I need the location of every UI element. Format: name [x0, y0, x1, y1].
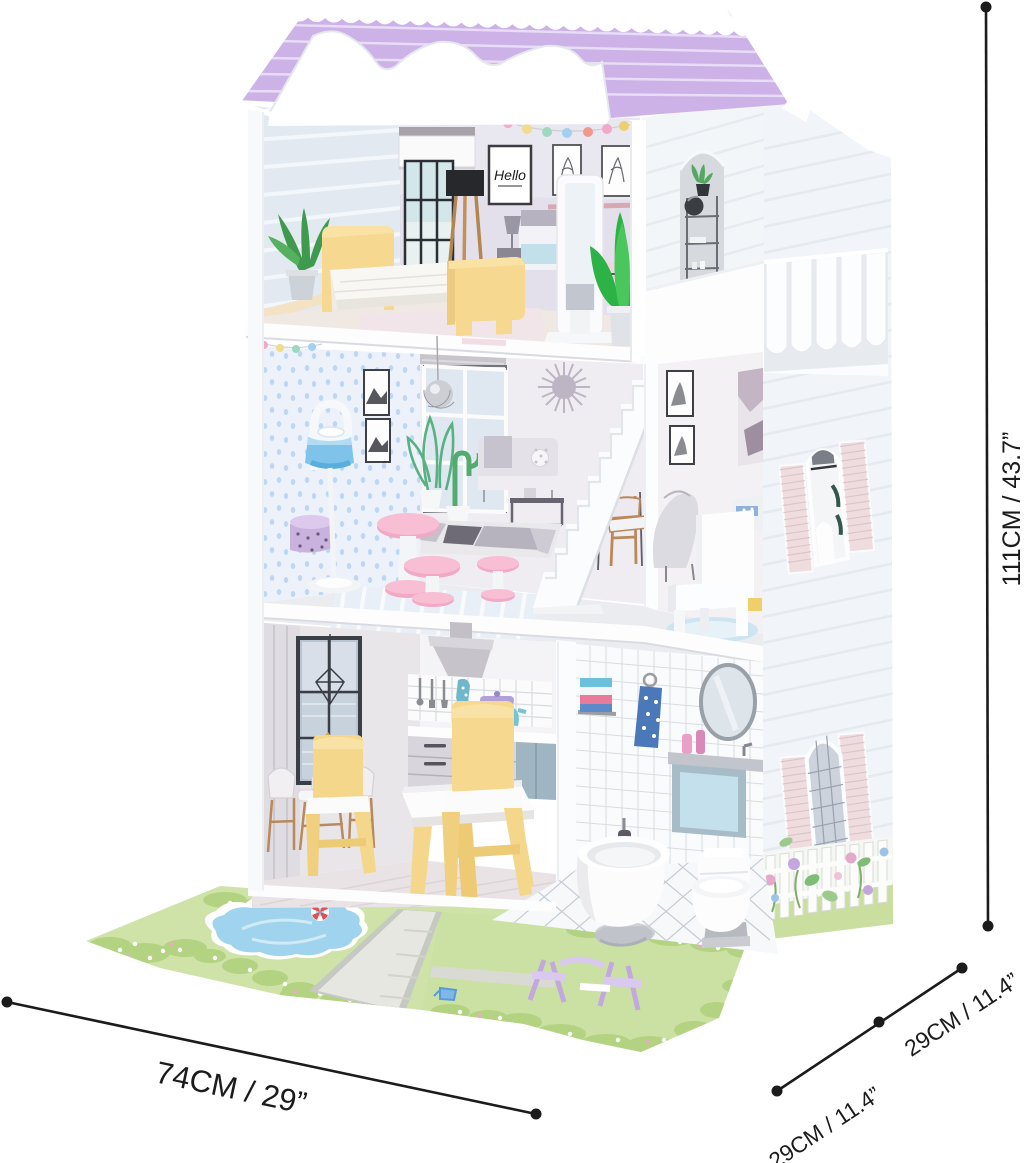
svg-text:111CM / 43.7”: 111CM / 43.7”: [998, 432, 1024, 587]
svg-text:Hello: Hello: [494, 167, 526, 183]
